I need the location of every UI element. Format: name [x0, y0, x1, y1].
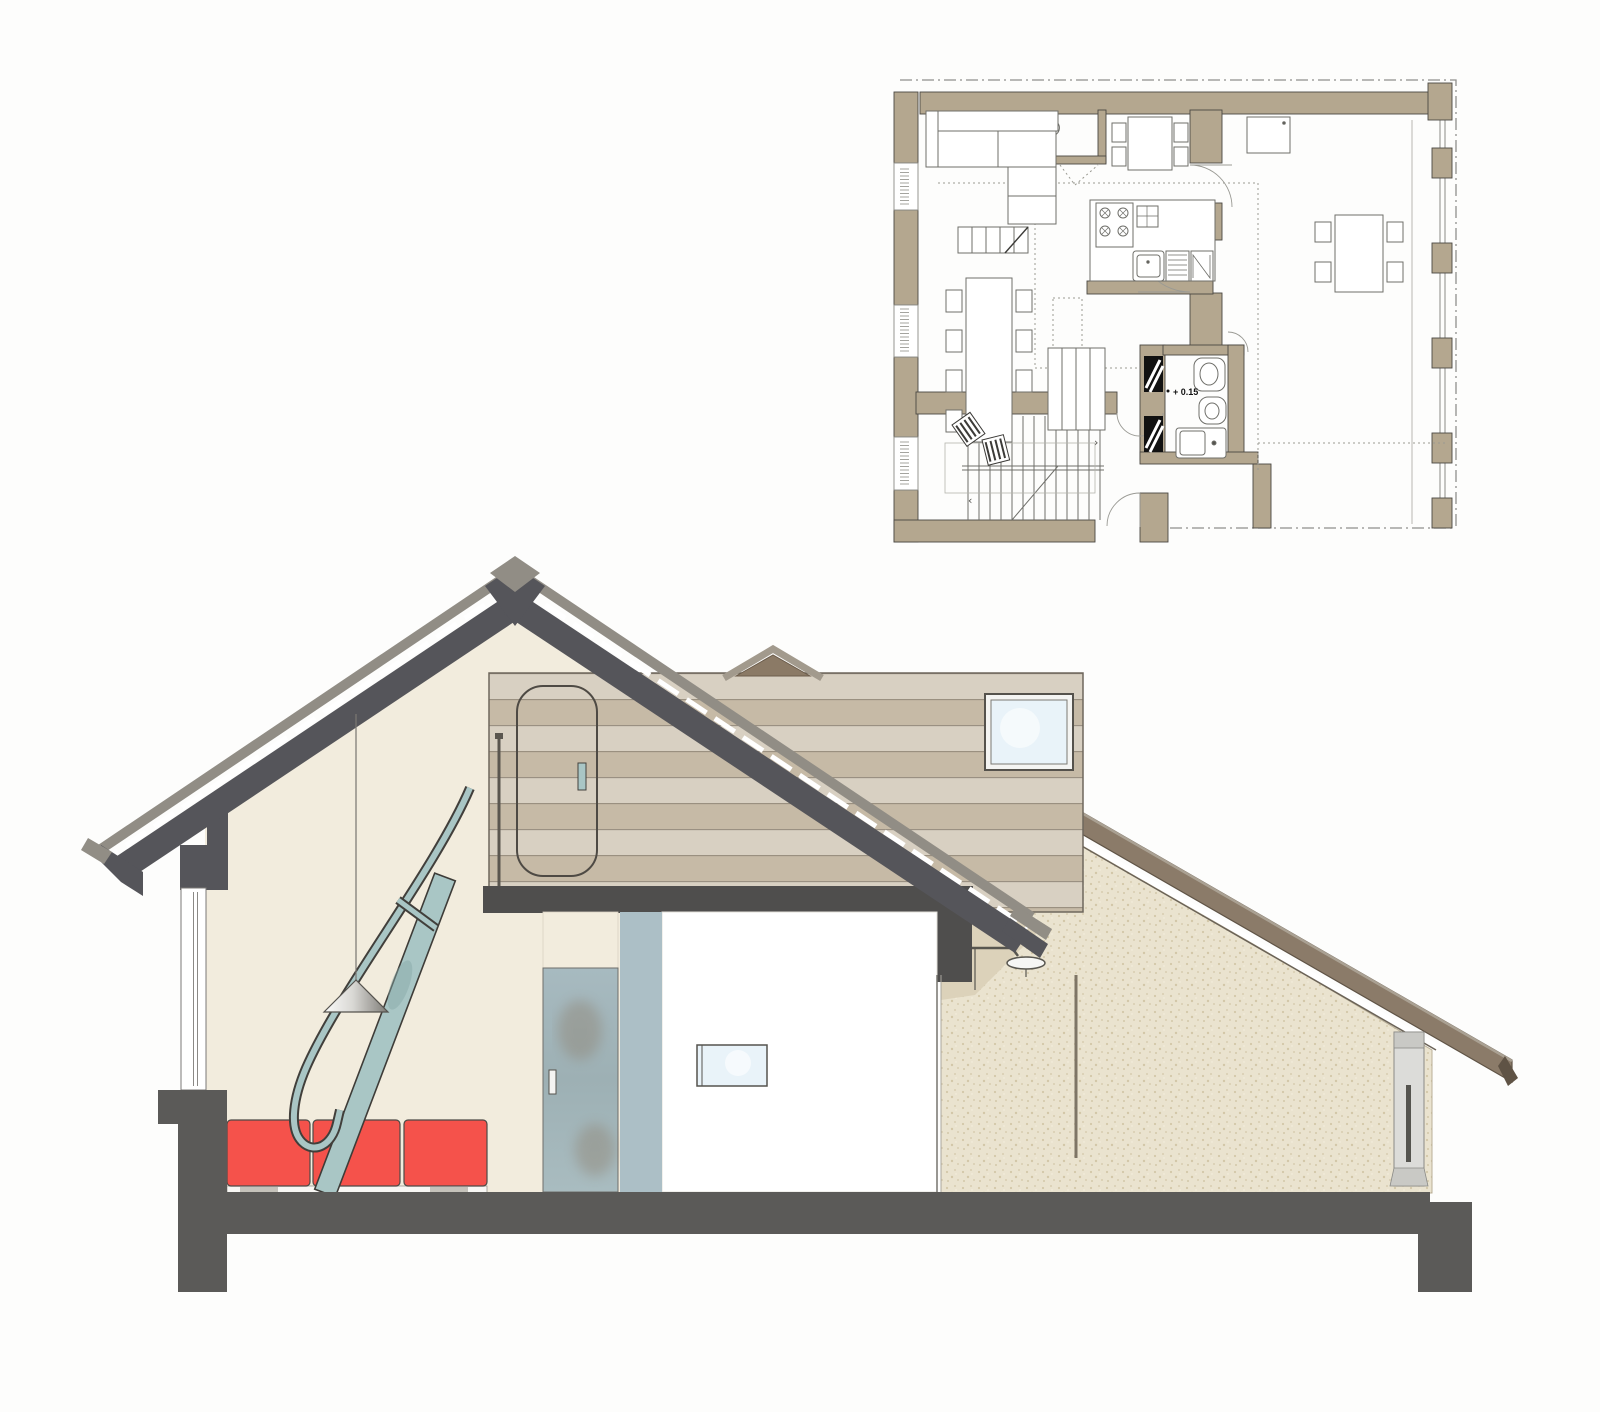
plan-sofa: [926, 111, 1058, 224]
door-handle: [578, 763, 586, 790]
floor-plan: › ‹: [894, 80, 1456, 542]
door-handle: [549, 1070, 556, 1094]
toilet-icon: [1199, 397, 1226, 424]
plan-terrace: [1247, 117, 1403, 292]
plan-glazed-wall: [1412, 120, 1445, 528]
level-annotation: + 0.15: [1173, 387, 1198, 397]
slab: [203, 1192, 1472, 1292]
glass-partition: [543, 912, 662, 1192]
plan-big-table: [1335, 215, 1383, 292]
stair-down-arrow: ‹: [968, 494, 972, 507]
plan-mini-stair: [958, 227, 1028, 253]
plan-long-table: [946, 278, 1032, 442]
architectural-drawing: › ‹: [0, 0, 1600, 1412]
wall-pillar: [1390, 1032, 1428, 1186]
drainer-icon: [1166, 251, 1189, 281]
pillar-slot: [1406, 1085, 1411, 1162]
white-room: [662, 912, 941, 1192]
drawing-svg: › ‹: [0, 0, 1600, 1412]
stair-up-arrow: ›: [1094, 436, 1098, 449]
oven-icon: [1137, 206, 1158, 227]
left-foundation: [158, 1090, 227, 1292]
interior-column: [620, 912, 662, 1192]
plan-bookshelf: [1048, 348, 1105, 430]
plan-kitchen: [1090, 200, 1215, 281]
plan-dining-table-small: [1112, 117, 1188, 170]
shower-tray-icon: [1176, 428, 1226, 458]
cross-section: [81, 556, 1518, 1292]
